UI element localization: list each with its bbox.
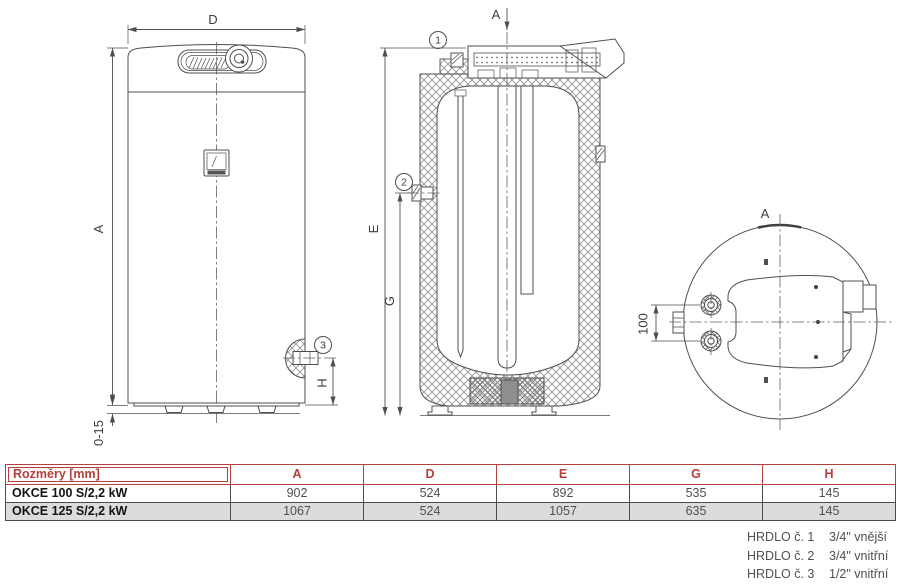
table-header-row: Rozměry [mm] A D E G H <box>6 465 896 485</box>
thermometer-scale <box>208 171 226 175</box>
table-row-okce-125: OKCE 125 S/2,2 kW 1067 524 1057 635 145 <box>6 502 896 520</box>
dim-label-e: E <box>366 224 381 233</box>
dimension-D: D <box>128 12 305 44</box>
foot <box>258 406 276 413</box>
dim-label-g: G <box>382 296 397 306</box>
water-heater-drawing: 3 D A 0-15 H <box>0 0 900 460</box>
value-cell: 535 <box>630 484 763 502</box>
model-name: OKCE 125 S/2,2 kW <box>6 502 231 520</box>
dim-label-h: H <box>315 378 330 387</box>
value-cell: 635 <box>630 502 763 520</box>
top-view-label-a: A <box>761 206 770 221</box>
technical-drawing-page: 3 D A 0-15 H <box>0 0 900 588</box>
dimension-A: A <box>91 48 128 406</box>
value-cell: 145 <box>763 484 896 502</box>
note-spec: 3/4" vnitřní <box>829 547 888 566</box>
mount-bracket <box>673 312 684 333</box>
value-cell: 902 <box>231 484 364 502</box>
model-name: OKCE 100 S/2,2 kW <box>6 484 231 502</box>
dimension-feet: 0-15 <box>91 393 113 446</box>
value-cell: 145 <box>763 502 896 520</box>
fitting-notes: HRDLO č. 1 3/4" vnější HRDLO č. 2 3/4" v… <box>747 528 888 584</box>
section-view: A 1 2 E G <box>366 7 624 416</box>
dim-label-d: D <box>208 12 217 27</box>
col-header-g: G <box>630 465 763 485</box>
view-arrow-A: A <box>492 7 507 30</box>
thermometer <box>204 150 229 176</box>
note-line: HRDLO č. 3 1/2" vnitřní <box>747 565 888 584</box>
element-cover-plate <box>728 276 843 368</box>
view-arrow-label: A <box>492 7 501 22</box>
dimension-H: H <box>305 358 338 405</box>
callout-3-label: 3 <box>320 340 326 352</box>
value-cell: 1057 <box>497 502 630 520</box>
dim-label-100: 100 <box>636 313 651 335</box>
table-corner-cell: Rozměry [mm] <box>6 465 231 485</box>
value-cell: 892 <box>497 484 630 502</box>
note-spec: 1/2" vnitřní <box>829 565 888 584</box>
table-row-okce-100: OKCE 100 S/2,2 kW 902 524 892 535 145 <box>6 484 896 502</box>
note-line: HRDLO č. 1 3/4" vnější <box>747 528 888 547</box>
orientation-mark <box>764 259 768 265</box>
orientation-mark <box>764 377 768 383</box>
col-header-a: A <box>231 465 364 485</box>
dim-label-feet: 0-15 <box>91 420 106 446</box>
top-fitting-1 <box>451 53 463 67</box>
top-view: 100 A <box>636 206 895 430</box>
foot <box>532 406 556 415</box>
dim-label-a: A <box>91 224 106 233</box>
screw <box>814 285 818 289</box>
knob-pointer <box>241 60 245 64</box>
col-header-e: E <box>497 465 630 485</box>
note-label: HRDLO č. 1 <box>747 528 829 547</box>
note-spec: 3/4" vnější <box>829 528 887 547</box>
col-header-h: H <box>763 465 896 485</box>
dimensions-table: Rozměry [mm] A D E G H OKCE 100 S/2,2 kW… <box>5 464 895 521</box>
screw <box>814 355 818 359</box>
table-corner-label: Rozměry [mm] <box>8 467 228 483</box>
lid-assembly <box>440 39 624 78</box>
value-cell: 524 <box>364 502 497 520</box>
foot <box>428 406 452 415</box>
note-label: HRDLO č. 3 <box>747 565 829 584</box>
foot <box>207 406 225 413</box>
front-base <box>107 403 300 414</box>
value-cell: 1067 <box>231 502 364 520</box>
col-header-d: D <box>364 465 497 485</box>
callout-2-label: 2 <box>401 177 407 189</box>
note-line: HRDLO č. 2 3/4" vnitřní <box>747 547 888 566</box>
callout-1-label: 1 <box>435 35 441 47</box>
front-view: 3 D A 0-15 H <box>91 12 338 446</box>
foot <box>165 406 183 413</box>
value-cell: 524 <box>364 484 497 502</box>
note-label: HRDLO č. 2 <box>747 547 829 566</box>
dimension-G: G <box>382 193 412 416</box>
